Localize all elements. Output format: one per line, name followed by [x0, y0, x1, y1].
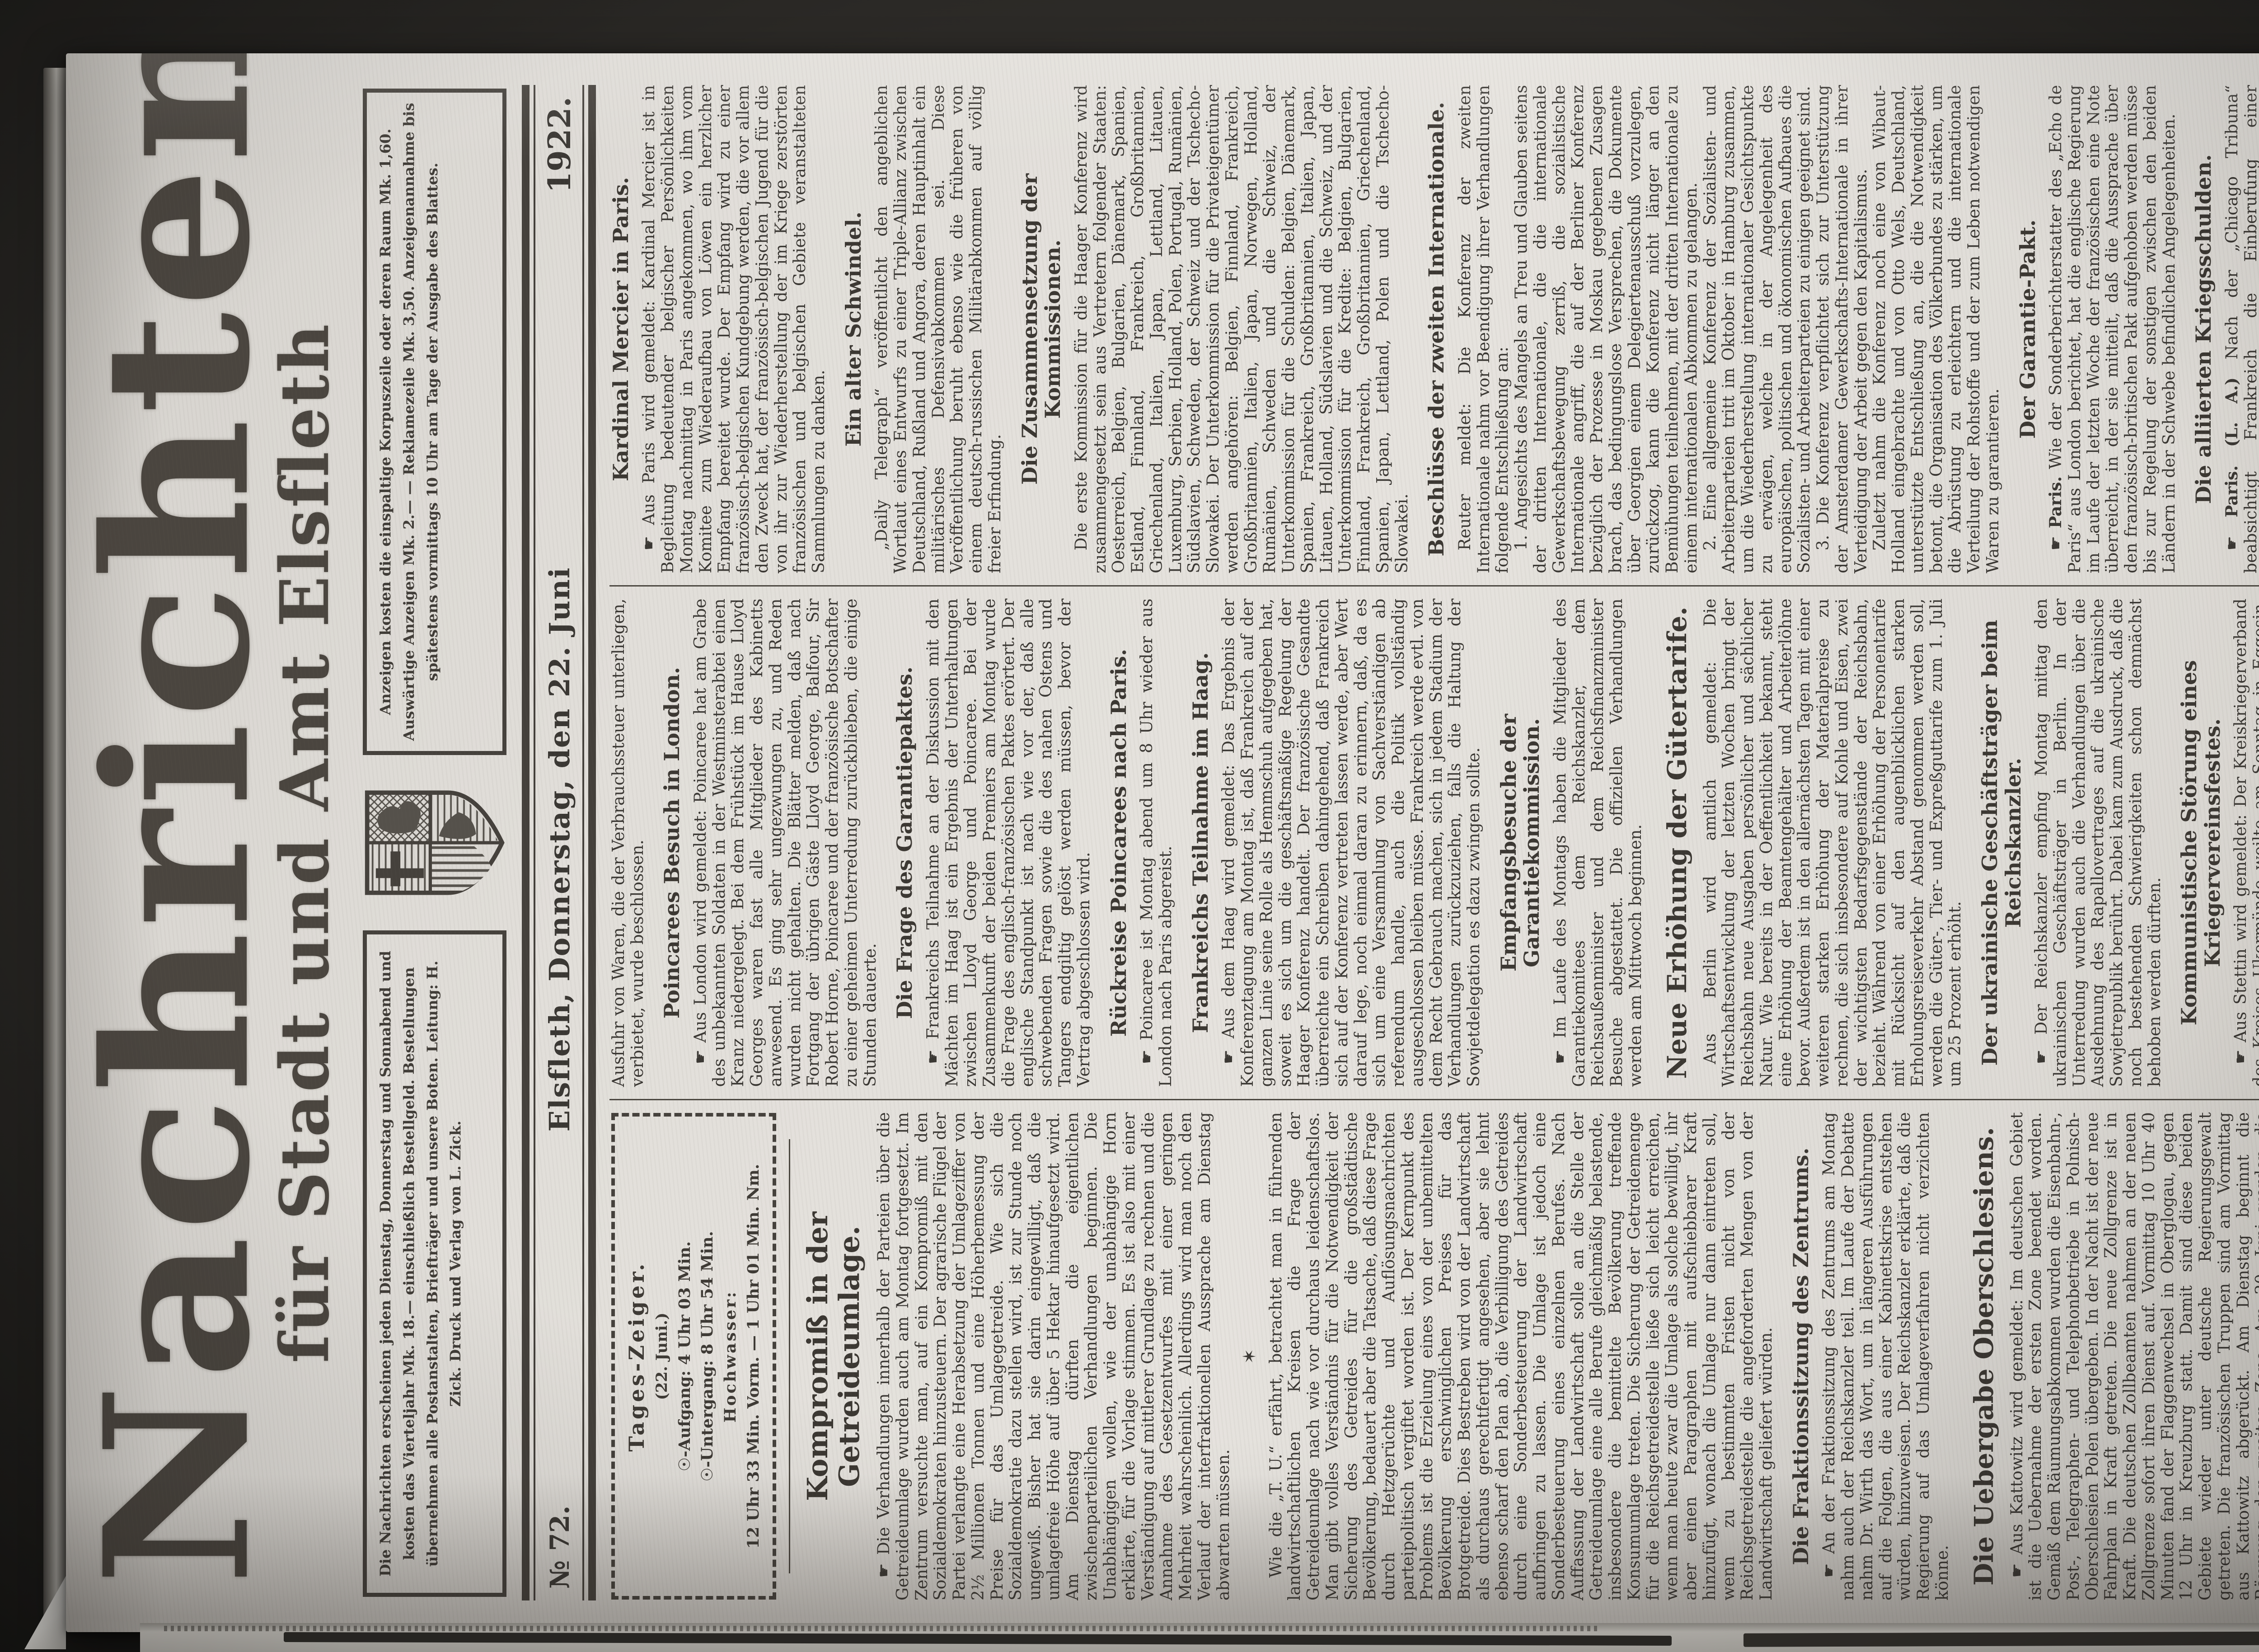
- dateline-year: 1922.: [542, 97, 578, 193]
- article-headline: Poincarees Besuch in London.: [661, 599, 684, 1087]
- issue-number: № 72.: [544, 1506, 575, 1589]
- paragraph-lead: ☛ Paris. (L. A.): [2222, 377, 2241, 550]
- article-headline: Kommunistische Störung eines Kriegervere…: [2178, 599, 2224, 1087]
- article-paragraph: Wie die „T. U.“ erfährt, betrachtet man …: [1267, 1112, 1776, 1600]
- article-paragraph: „Daily Telegraph“ veröffentlicht den ang…: [872, 85, 1004, 573]
- article-headline: Die alliierten Kriegsschulden.: [2192, 85, 2216, 573]
- almanac-box: Tages-Zeiger. (22. Juni.) ☉-Aufgang: 4 U…: [611, 1113, 776, 1600]
- article-headline: Empfangsbesuche der Garantiekommission.: [1497, 599, 1544, 1087]
- article-paragraph: ☛ Frankreichs Teilnahme an der Diskussio…: [924, 599, 1094, 1087]
- article-paragraph: ☛ Die Verhandlungen innerhalb der Partei…: [875, 1112, 1233, 1600]
- masthead-info-row: Die Nachrichten erscheinen jeden Diensta…: [363, 89, 506, 1597]
- almanac-date: (22. Juni.): [653, 1125, 671, 1588]
- next-page-edge: [140, 1623, 2259, 1652]
- article-paragraph: ☛ Aus London wird gemeldet: Poincaree ha…: [691, 599, 880, 1087]
- article-paragraph: Reuter meldet: Die Konferenz der zweiten…: [1456, 85, 1512, 573]
- article-headline: Ein alter Schwindel.: [842, 85, 866, 573]
- article-headline: Beschlüsse der zweiten Internationale.: [1425, 85, 1448, 573]
- article-headline: Rückreise Poincarees nach Paris.: [1107, 599, 1131, 1087]
- article-paragraph: ☛ Paris. (L. A.) Nach der „Chicago Tribu…: [2223, 85, 2259, 573]
- article-paragraph: ☛ Aus Paris wird gemeldet: Kardinal Merc…: [640, 85, 829, 573]
- article-headline: Die Zusammensetzung der Kommissionen.: [1018, 85, 1065, 573]
- article-headline: Kompromiß in der Getreideumlage.: [802, 1112, 865, 1600]
- publication-info-box: Die Nachrichten erscheinen jeden Diensta…: [363, 930, 506, 1597]
- article-paragraph: ☛ An der Fraktionssitzung des Zentrums a…: [1820, 1112, 1952, 1600]
- article-paragraph: 3. Die Konferenz verpflichtet sich zur U…: [1814, 85, 1870, 573]
- separator-rule: [789, 1139, 790, 1573]
- tide-label: Hochwasser:: [722, 1125, 740, 1588]
- article-paragraph: Aus Berlin wird amtlich gemeldet: Die Wi…: [1701, 599, 1965, 1087]
- article-paragraph: 1. Angesichts des Mangels an Treu und Gl…: [1512, 85, 1701, 573]
- article-paragraph: Zuletzt nahm die Konferenz noch eine von…: [1870, 85, 2002, 573]
- next-page-ink-bar: [284, 1632, 1672, 1646]
- body-columns: Tages-Zeiger. (22. Juni.) ☉-Aufgang: 4 U…: [609, 85, 2259, 1600]
- article-paragraph: ☛ Poincaree ist Montag abend um 8 Uhr wi…: [1138, 599, 1176, 1087]
- rule-below-dateline-thin: [582, 85, 584, 1600]
- coat-of-arms-icon: [363, 775, 506, 910]
- article-headline: Die Frage des Garantiepaktes.: [893, 599, 917, 1087]
- masthead: Nachrichten für Stadt und Amt Elsfleth D…: [87, 85, 506, 1600]
- article-headline: Frankreichs Teilnahme im Haag.: [1189, 599, 1213, 1087]
- paragraph-lead: ☛ Paris.: [2046, 476, 2065, 550]
- article-headline: Der ukrainische Geschäftsträger beim Rei…: [1978, 599, 2025, 1087]
- article-headline: Die Fraktionssitzung des Zentrums.: [1790, 1112, 1813, 1600]
- almanac-title: Tages-Zeiger.: [625, 1125, 649, 1588]
- article-paragraph: ☛ Im Laufe des Montags haben die Mitglie…: [1551, 599, 1645, 1087]
- next-page-ink-bar: [1743, 1631, 2259, 1647]
- sunset-time: ☉-Untergang: 8 Uhr 54 Min.: [698, 1125, 717, 1588]
- article-headline: Neue Erhöhung der Gütertarife.: [1663, 599, 1692, 1087]
- article-headline: Kardinal Mercier in Paris.: [609, 85, 633, 573]
- article-paragraph: ☛ Aus Stettin wird gemeldet: Der Kreiskr…: [2231, 599, 2259, 1087]
- page-title: Nachrichten: [87, 53, 269, 1600]
- newspaper-sheet: Nachrichten für Stadt und Amt Elsfleth D…: [66, 53, 2259, 1632]
- dateline: № 72. Elsfleth, Donnerstag, den 22. Juni…: [535, 85, 582, 1600]
- page-stack-edges: [43, 68, 67, 1622]
- article-paragraph: ☛ Der Reichskanzler empfing Montag mitta…: [2032, 599, 2164, 1087]
- ad-rates-box: Anzeigen kosten die einspaltige Korpusze…: [363, 89, 506, 755]
- dateline-place-date: Elsfleth, Donnerstag, den 22. Juni: [543, 567, 576, 1131]
- article-paragraph: 2. Eine allgemeine Konferenz der Soziali…: [1701, 85, 1814, 573]
- next-page-microtext: [164, 1626, 1600, 1631]
- newspaper-page: Nachrichten für Stadt und Amt Elsfleth D…: [66, 53, 2259, 1632]
- photo-scene: Nachrichten für Stadt und Amt Elsfleth D…: [0, 0, 2259, 1652]
- sunrise-time: ☉-Aufgang: 4 Uhr 03 Min.: [676, 1125, 694, 1588]
- rule-above-dateline: [522, 85, 530, 1600]
- article-paragraph: ☛ Paris. Wie der Sonderberichterstatter …: [2047, 85, 2179, 573]
- article-paragraph: ☛ Aus dem Haag wird gemeldet: Das Ergebn…: [1219, 599, 1484, 1087]
- article-headline: Die Uebergabe Oberschlesiens.: [1969, 1112, 1999, 1600]
- article-paragraph: Die erste Kommission für die Haager Konf…: [1072, 85, 1412, 573]
- star-divider: ✶: [1239, 1112, 1260, 1600]
- article-headline: Der Garantie-Pakt.: [2016, 85, 2040, 573]
- rule-below-dateline: [588, 85, 596, 1600]
- tide-times: 12 Uhr 33 Min. Vorm. — 1 Uhr 01 Min. Nm.: [745, 1125, 763, 1588]
